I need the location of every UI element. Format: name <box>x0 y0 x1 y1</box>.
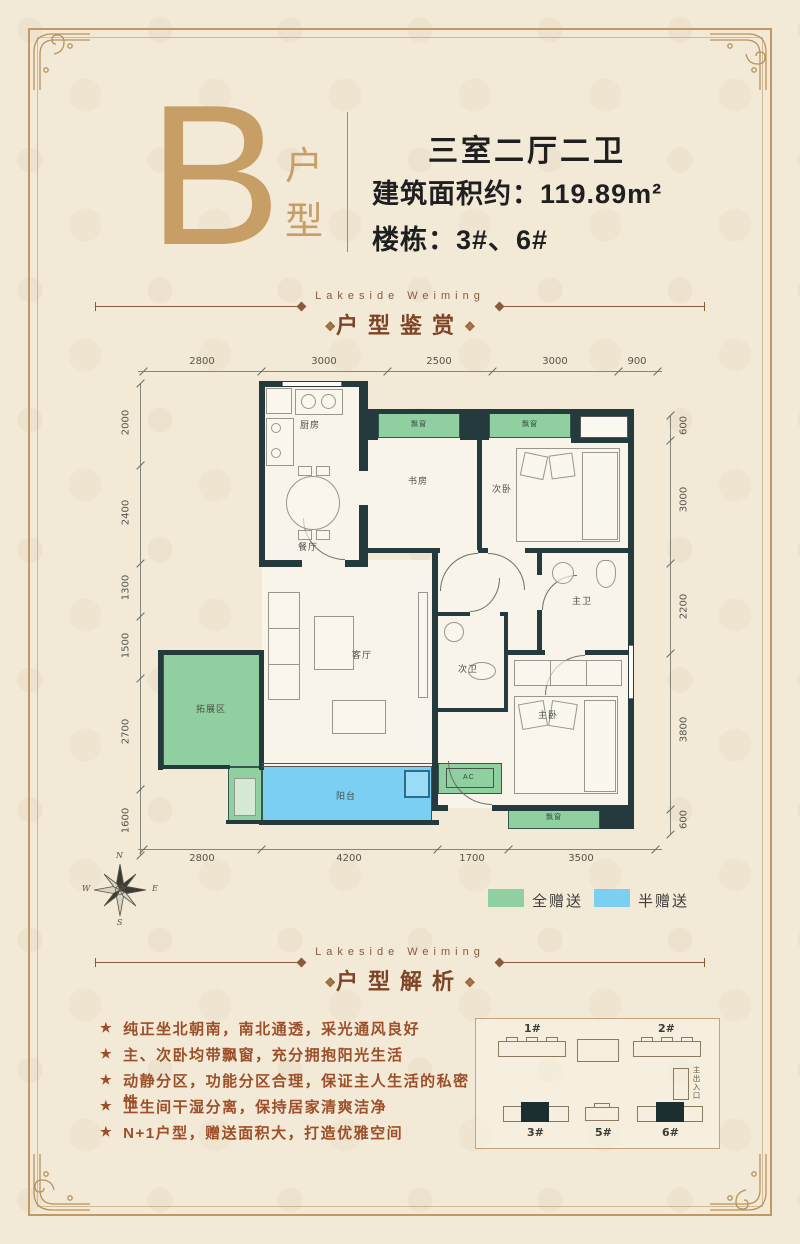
sofa <box>268 592 300 700</box>
wardrobe-divider <box>550 660 551 686</box>
wall-segment <box>345 560 368 567</box>
dining-table <box>286 476 340 530</box>
wall-segment <box>362 548 440 553</box>
site-entrance-label: 主出入口 <box>691 1066 702 1100</box>
dimension-line-right <box>670 415 671 834</box>
corner-flourish-icon <box>30 30 94 94</box>
unit-type-word-1: 户 <box>284 140 324 195</box>
dim-right-3: 2200 <box>679 579 690 635</box>
dim-bottom-4: 3500 <box>551 853 611 864</box>
wall-segment <box>158 650 163 770</box>
dim-top-1: 2800 <box>172 356 232 367</box>
wall-segment <box>432 805 448 811</box>
dim-left-2: 2400 <box>121 485 132 541</box>
wall-segment <box>362 409 378 440</box>
dim-bottom-3: 1700 <box>442 853 502 864</box>
dim-left-1: 2000 <box>121 395 132 451</box>
balcony-door-line <box>262 763 432 764</box>
title-ornament-icon: ❖ <box>324 319 336 334</box>
section-appreciation-en: Lakeside Weiming <box>250 290 550 302</box>
site-building-bump <box>506 1037 518 1042</box>
header-divider <box>347 112 348 252</box>
section-analysis-en: Lakeside Weiming <box>250 946 550 958</box>
star-icon: ★ <box>100 1096 113 1116</box>
compass-w-label: W <box>82 884 90 893</box>
wall-segment <box>158 765 230 769</box>
wall-segment <box>259 820 439 825</box>
dining-chair <box>316 466 330 476</box>
stove-burner <box>271 423 281 433</box>
divider-line <box>95 962 300 963</box>
wardrobe <box>514 660 622 686</box>
unit-type-letter: B <box>148 96 281 256</box>
area-text: 建筑面积约：119.89m² <box>372 172 662 211</box>
window <box>629 645 633 699</box>
bathroom-sink <box>444 622 464 642</box>
compass-icon <box>92 862 148 918</box>
unit-type-word-2: 型 <box>284 195 324 250</box>
washing-machine <box>404 770 430 798</box>
bay-window-label: 飘窗 <box>411 419 427 429</box>
dim-left-4: 1500 <box>121 618 132 674</box>
wall-segment <box>600 805 634 829</box>
wall-segment <box>504 612 508 712</box>
dim-left-5: 2700 <box>121 704 132 760</box>
dim-right-1: 600 <box>679 398 690 454</box>
corner-flourish-icon <box>30 1150 94 1214</box>
tv-cabinet <box>418 592 428 698</box>
star-icon: ★ <box>100 1044 113 1064</box>
wall-segment <box>585 650 634 655</box>
dim-top-3: 2500 <box>409 356 469 367</box>
wall-segment <box>537 610 542 653</box>
blanket <box>582 452 618 540</box>
site-building-bump <box>594 1103 610 1108</box>
wall-segment <box>262 560 302 567</box>
fridge <box>266 388 292 414</box>
wall-segment <box>432 548 438 805</box>
corner-flourish-icon <box>706 1150 770 1214</box>
window <box>282 382 342 386</box>
water-heater <box>234 778 256 816</box>
site-amenity-block <box>577 1039 619 1062</box>
compass-n-label: N <box>116 851 123 860</box>
wall-segment <box>460 409 489 440</box>
analysis-item-text: 纯正坐北朝南，南北通透，采光通风良好 <box>123 1018 420 1039</box>
dim-right-2: 3000 <box>679 472 690 528</box>
corner-flourish-icon <box>706 30 770 94</box>
ac-label: AC <box>463 774 475 781</box>
dim-top-4: 3000 <box>525 356 585 367</box>
legend-half-label: 半赠送 <box>638 890 689 911</box>
bathroom-sink <box>552 562 574 584</box>
room-label-study: 书房 <box>408 474 428 487</box>
section-analysis-title: ❖户型解析❖ <box>250 964 550 996</box>
divider-line <box>500 962 705 963</box>
divider-line <box>500 306 705 307</box>
blanket <box>584 700 616 792</box>
title-ornament-icon: ❖ <box>464 975 476 990</box>
site-building-5-label: 5# <box>595 1126 612 1139</box>
site-building-bump <box>546 1037 558 1042</box>
wall-segment <box>226 820 262 824</box>
dining-chair <box>298 466 312 476</box>
balcony-door-line <box>262 766 432 767</box>
room-label-master: 主卧 <box>538 708 558 721</box>
legend-full-swatch <box>488 889 524 907</box>
star-icon: ★ <box>100 1122 113 1142</box>
kitchen-sink-bowl <box>321 394 336 409</box>
armchair <box>332 700 386 734</box>
title-ornament-icon: ❖ <box>464 319 476 334</box>
dim-bottom-2: 4200 <box>319 853 379 864</box>
room-label-bath-second: 次卫 <box>458 662 478 675</box>
layout-text: 三室二厅二卫 <box>428 126 626 170</box>
dimension-line-left <box>140 383 141 855</box>
bay-window-label: 飘窗 <box>546 812 562 822</box>
site-building-6-highlight <box>656 1102 684 1122</box>
site-building-bump <box>661 1037 673 1042</box>
legend-full-label: 全赠送 <box>532 890 583 911</box>
dim-right-5: 600 <box>679 792 690 848</box>
site-building-3-label: 3# <box>527 1126 544 1139</box>
built-in-closet <box>580 416 628 438</box>
dim-bottom-1: 2800 <box>172 853 232 864</box>
legend-half-swatch <box>594 889 630 907</box>
divider-endtick <box>95 302 96 311</box>
room-label-bath-master: 主卫 <box>572 594 592 607</box>
wall-segment <box>259 650 264 770</box>
sofa-cushion-line <box>268 628 300 629</box>
wall-segment <box>259 381 265 567</box>
wardrobe-divider <box>586 660 587 686</box>
compass-e-label: E <box>152 884 158 893</box>
compass-s-label: S <box>117 918 122 927</box>
room-label-dining: 餐厅 <box>298 540 318 553</box>
dim-right-4: 3800 <box>679 702 690 758</box>
title-ornament-icon: ❖ <box>324 975 336 990</box>
dim-left-3: 1300 <box>121 560 132 616</box>
analysis-item-text: N+1户型，赠送面积大，打造优雅空间 <box>123 1122 403 1143</box>
site-building-1-label: 1# <box>524 1022 541 1035</box>
wall-segment <box>477 414 482 550</box>
pillow <box>520 452 548 480</box>
site-building-5 <box>585 1107 619 1121</box>
star-icon: ★ <box>100 1070 113 1090</box>
floorplan-poster: B 户 型 三室二厅二卫 建筑面积约：119.89m² 楼栋：3#、6# Lak… <box>0 0 800 1244</box>
dimension-line-bottom <box>138 849 662 850</box>
divider-line <box>95 306 300 307</box>
room-label-bedroom2: 次卧 <box>492 482 512 495</box>
site-building-1 <box>498 1041 566 1057</box>
site-building-6-label: 6# <box>662 1126 679 1139</box>
wall-segment <box>478 548 488 553</box>
bay-window-label: 飘窗 <box>522 419 538 429</box>
dim-top-2: 3000 <box>294 356 354 367</box>
stove-burner <box>271 448 281 458</box>
divider-endtick <box>704 302 705 311</box>
wall-segment <box>359 505 368 566</box>
site-building-bump <box>526 1037 538 1042</box>
site-building-bump <box>641 1037 653 1042</box>
kitchen-sink-bowl <box>301 394 316 409</box>
wall-segment <box>628 409 634 810</box>
buildings-text: 楼栋：3#、6# <box>372 218 548 257</box>
analysis-item-text: 卫生间干湿分离，保持居家清爽洁净 <box>123 1096 387 1117</box>
dim-top-5: 900 <box>607 356 667 367</box>
wall-segment <box>158 650 264 655</box>
dimension-line-top <box>138 371 662 372</box>
wall-segment <box>537 548 542 575</box>
coffee-table <box>314 616 354 670</box>
wall-segment <box>505 650 545 655</box>
site-entrance-block <box>673 1068 689 1100</box>
dining-chair <box>316 530 330 540</box>
wall-segment <box>432 612 470 616</box>
divider-endtick <box>95 958 96 967</box>
site-building-3-highlight <box>521 1102 549 1122</box>
site-building-2 <box>633 1041 701 1057</box>
wall-segment <box>432 708 508 712</box>
star-icon: ★ <box>100 1018 113 1038</box>
section-appreciation-title: ❖户型鉴赏❖ <box>250 308 550 340</box>
analysis-item-text: 主、次卧均带飘窗，充分拥抱阳光生活 <box>123 1044 404 1065</box>
divider-endtick <box>704 958 705 967</box>
toilet <box>596 560 616 588</box>
site-building-2-label: 2# <box>658 1022 675 1035</box>
sofa-cushion-line <box>268 664 300 665</box>
room-label-balcony: 阳台 <box>336 789 356 802</box>
room-label-bonus: 拓展区 <box>196 702 226 715</box>
site-building-bump <box>681 1037 693 1042</box>
room-label-living: 客厅 <box>352 648 372 661</box>
room-label-kitchen: 厨房 <box>300 418 320 431</box>
dining-chair <box>298 530 312 540</box>
pillow <box>548 452 575 479</box>
dim-left-6: 1600 <box>121 793 132 849</box>
